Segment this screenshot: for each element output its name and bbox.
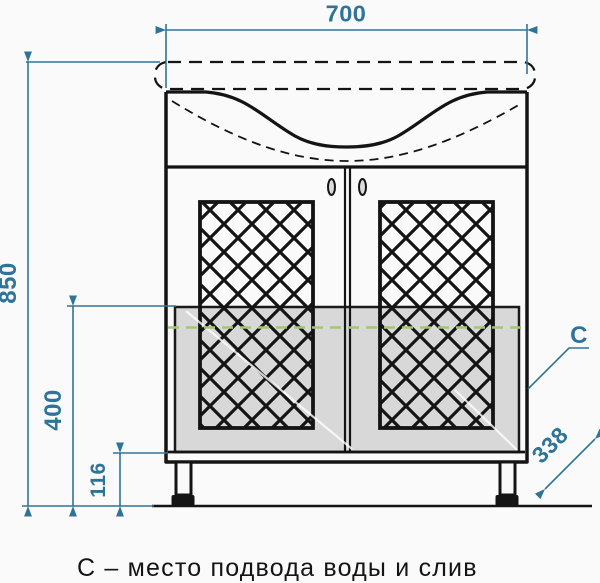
- dimension-value-400: 400: [40, 389, 67, 431]
- dimension-overall-height: 850: [0, 62, 160, 506]
- sink-basin-hidden-curve: [172, 101, 522, 161]
- left-foot: [172, 495, 195, 506]
- dimension-leg-clearance: 116: [87, 453, 167, 506]
- left-door-handle: [328, 179, 335, 195]
- caption-legend: С – место подвода воды и слив: [77, 554, 477, 582]
- left-door-lattice-panel: [200, 202, 313, 428]
- vanity-cabinet-technical-drawing: 700 850 400 116 338 С С – место подвода …: [0, 0, 600, 583]
- leader-line: [528, 348, 589, 389]
- dimension-value-338: 338: [527, 422, 574, 469]
- dimension-overall-width: 700: [166, 1, 527, 89]
- left-leg: [176, 462, 191, 495]
- dimension-value-850: 850: [0, 262, 22, 304]
- right-leg: [500, 462, 515, 495]
- dimension-depth: 338: [527, 422, 595, 489]
- dimension-value-116: 116: [87, 462, 110, 497]
- right-door-lattice-panel: [380, 202, 493, 428]
- sink-basin-front-curve: [166, 92, 527, 147]
- connection-point-label: С: [570, 322, 588, 349]
- right-door-handle: [359, 179, 366, 195]
- connection-point-callout: С: [528, 322, 589, 389]
- drawing-svg: 700 850 400 116 338 С С – место подвода …: [0, 0, 600, 583]
- sink-rim-dashed-outline: [155, 62, 535, 89]
- right-foot: [496, 495, 519, 506]
- dimension-value-700: 700: [326, 1, 367, 27]
